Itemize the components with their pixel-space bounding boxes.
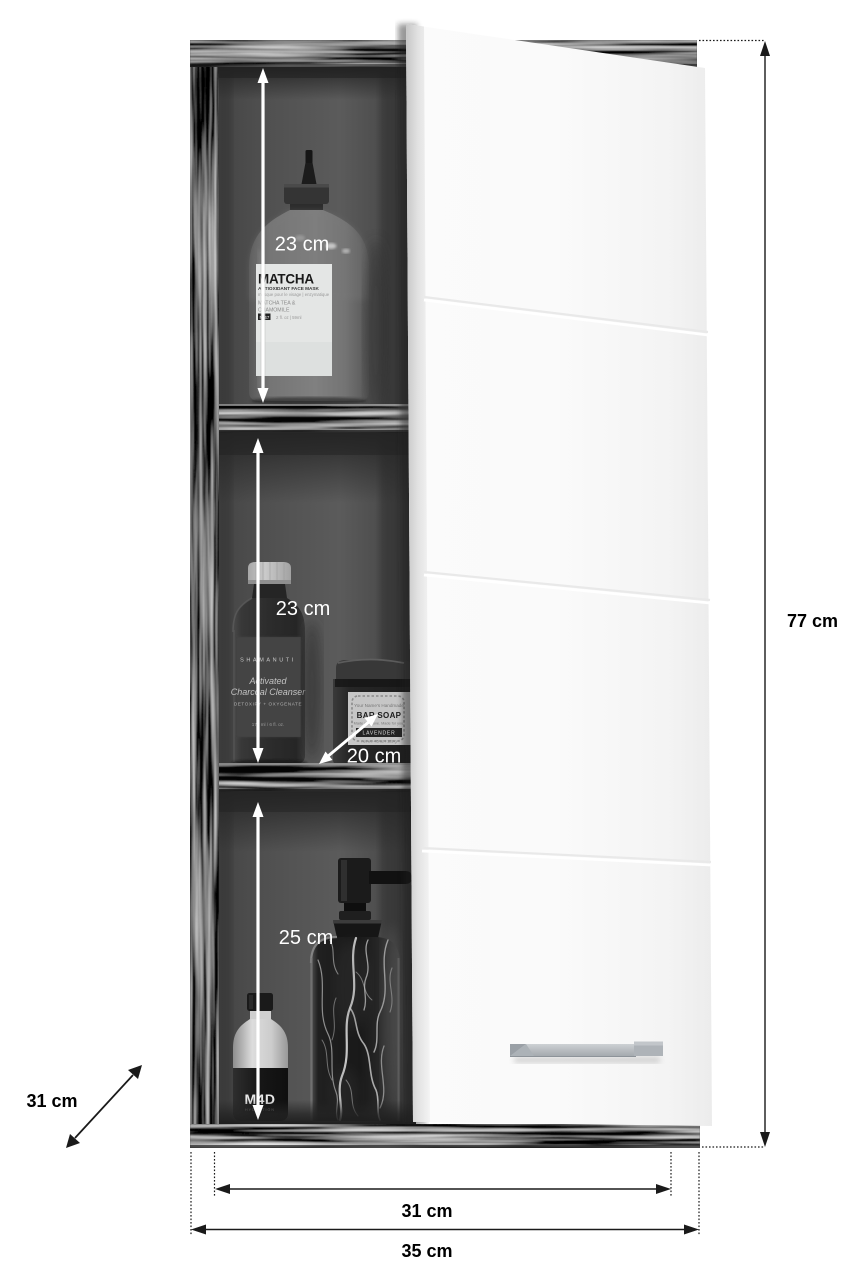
svg-text:Your Name's Handmade: Your Name's Handmade [354,703,404,708]
svg-text:SHAMANUTI: SHAMANUTI [240,658,296,664]
svg-text:35 cm: 35 cm [401,1241,452,1261]
svg-text:MATCHA: MATCHA [258,272,314,287]
svg-text:net wt. 4.5 oz / 128 g: net wt. 4.5 oz / 128 g [361,740,396,744]
svg-text:ANTIOXIDANT FACE MASK: ANTIOXIDANT FACE MASK [258,286,320,291]
svg-text:23 cm: 23 cm [275,234,329,256]
svg-text:20 cm: 20 cm [347,746,401,768]
svg-text:31 cm: 31 cm [401,1201,452,1221]
svg-text:23 cm: 23 cm [276,598,330,620]
svg-text:31 cm: 31 cm [26,1091,77,1111]
svg-text:25 cm: 25 cm [279,927,333,949]
svg-text:masque pour le visage | enzyma: masque pour le visage | enzymatique [258,292,330,297]
svg-text:Made with love. Made for you.: Made with love. Made for you. [354,722,405,726]
svg-text:Charcoal Cleanser: Charcoal Cleanser [231,687,307,697]
svg-text:77 cm: 77 cm [787,611,838,631]
svg-text:Activated: Activated [248,676,287,686]
svg-text:DETOXIFY + OXYGENATE: DETOXIFY + OXYGENATE [234,702,302,707]
svg-text:2 fl. oz | 59ml: 2 fl. oz | 59ml [276,315,302,320]
svg-text:BAR SOAP: BAR SOAP [357,711,402,720]
svg-text:LAVENDER: LAVENDER [363,731,396,737]
